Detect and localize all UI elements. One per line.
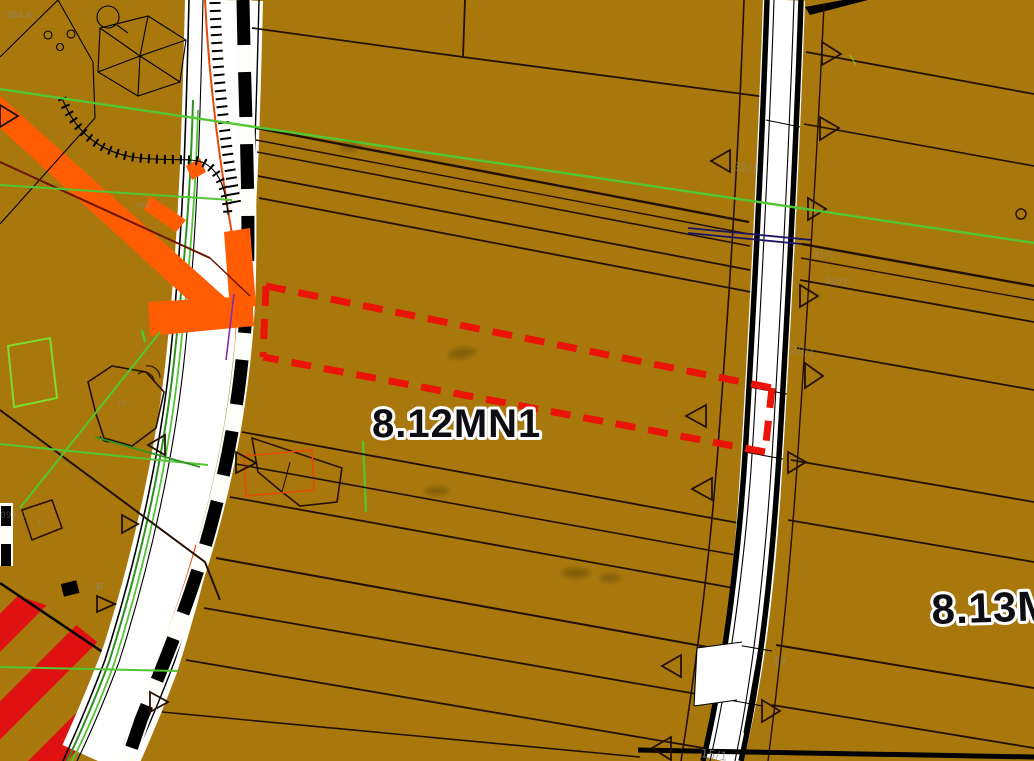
parcel-number-label: 17 <box>772 654 788 669</box>
elevation-label: 384.8 <box>6 11 32 21</box>
parcel-number-label: 15/1 <box>700 746 729 761</box>
annotation-label: m2 <box>136 201 151 211</box>
annotation-label: m <box>118 399 127 409</box>
zone-label-812mn1: 8.12MN1 <box>372 402 541 446</box>
map-canvas[interactable]: 8.12MN1 8.13M 32/1 31/1 30/1 28/1 17 15/… <box>0 0 1034 761</box>
annotation-label: B <box>96 582 103 593</box>
zone-label-813m: 8.13M <box>931 582 1034 633</box>
annotation-label: t <box>38 519 42 529</box>
white-parcel-patch <box>694 642 742 706</box>
annotation-label: 093.0 <box>0 511 26 521</box>
